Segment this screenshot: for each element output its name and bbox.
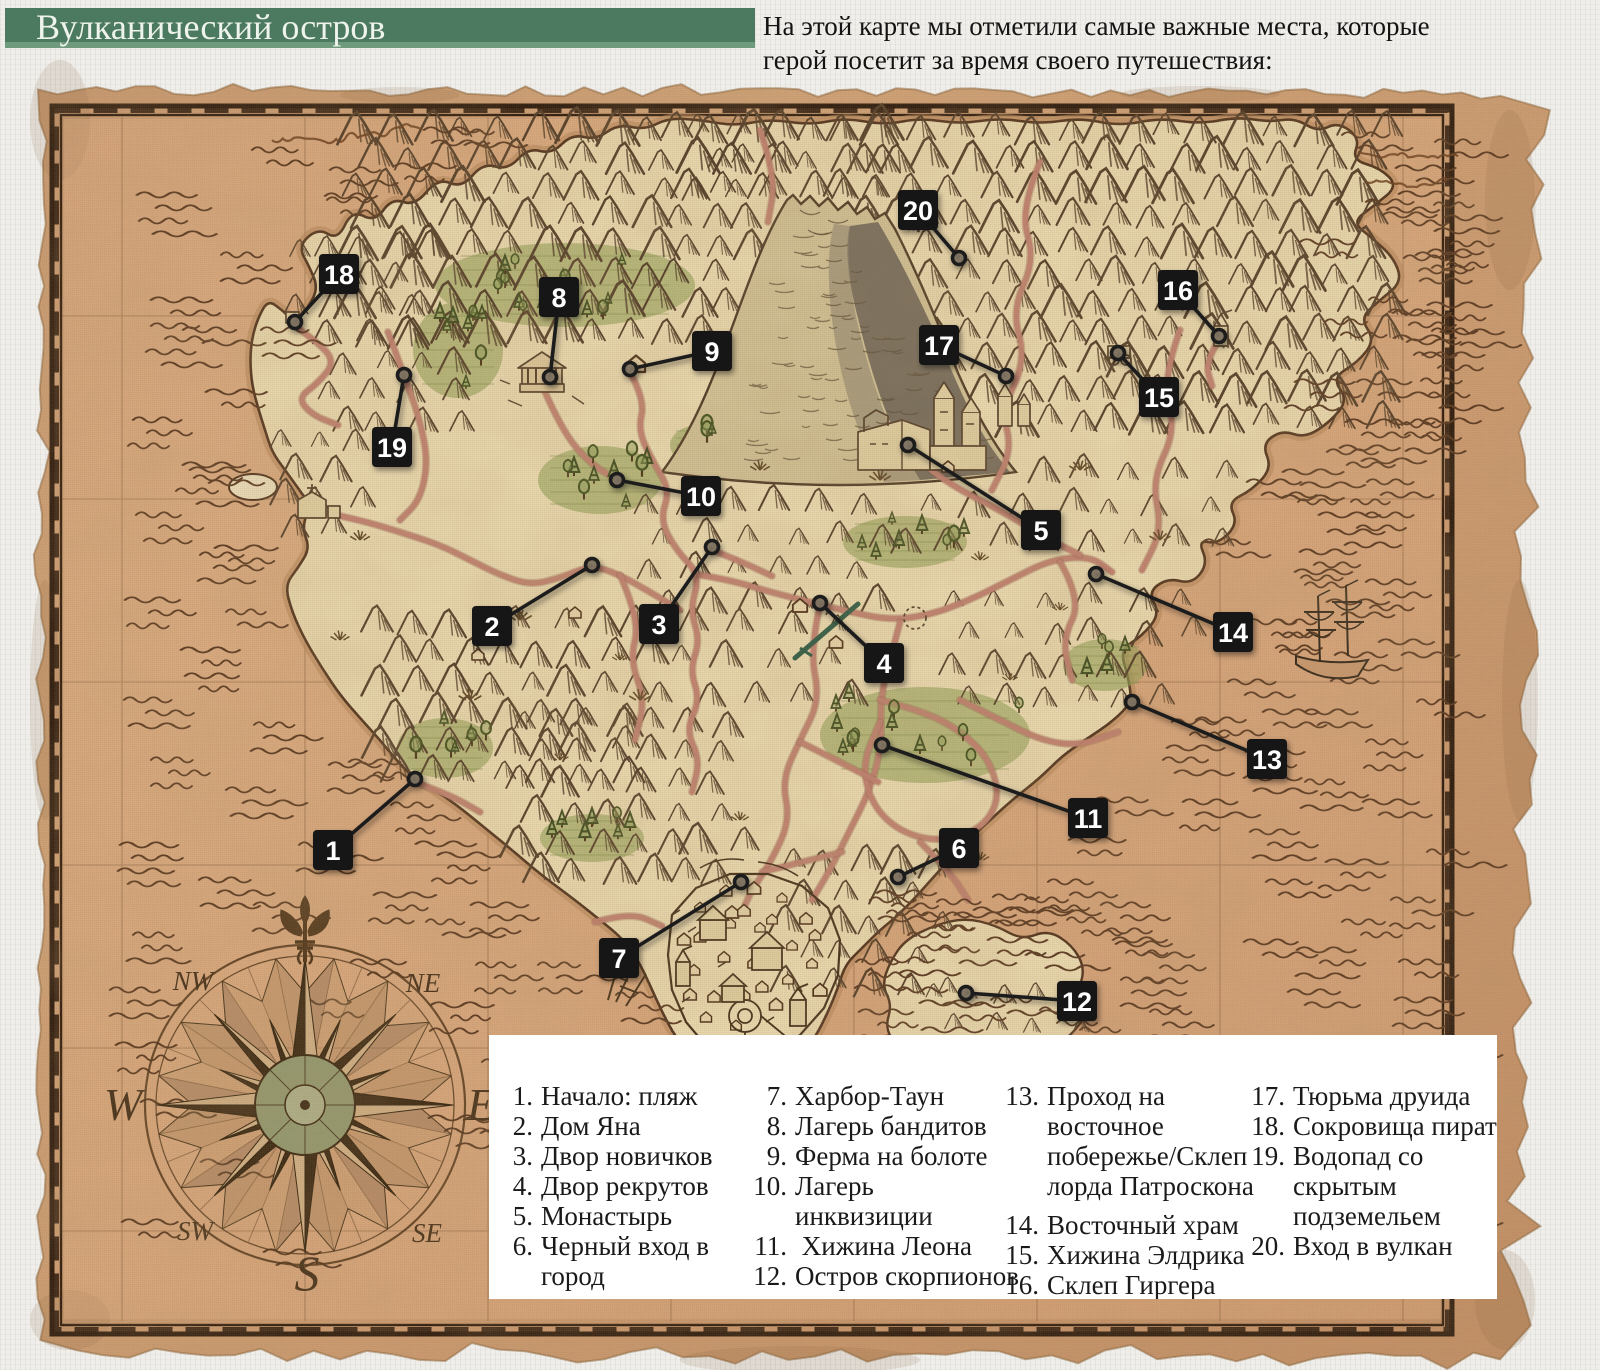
- svg-text:6: 6: [951, 834, 966, 864]
- svg-text:19: 19: [377, 433, 407, 463]
- svg-text:1: 1: [325, 836, 340, 866]
- svg-text:7: 7: [611, 944, 626, 974]
- svg-text:16: 16: [1163, 276, 1193, 306]
- svg-text:11: 11: [1074, 804, 1103, 834]
- svg-text:9: 9: [704, 337, 719, 367]
- svg-text:2: 2: [484, 612, 499, 642]
- svg-text:13: 13: [1252, 745, 1282, 775]
- svg-text:18: 18: [324, 260, 354, 290]
- svg-text:20: 20: [903, 196, 933, 226]
- svg-text:15: 15: [1144, 383, 1174, 413]
- svg-text:8: 8: [551, 283, 566, 313]
- svg-text:5: 5: [1033, 516, 1048, 546]
- svg-text:14: 14: [1218, 618, 1248, 648]
- svg-text:4: 4: [876, 649, 891, 679]
- svg-text:17: 17: [924, 331, 954, 361]
- svg-text:12: 12: [1062, 987, 1092, 1017]
- svg-text:10: 10: [686, 482, 716, 512]
- svg-text:3: 3: [651, 610, 666, 640]
